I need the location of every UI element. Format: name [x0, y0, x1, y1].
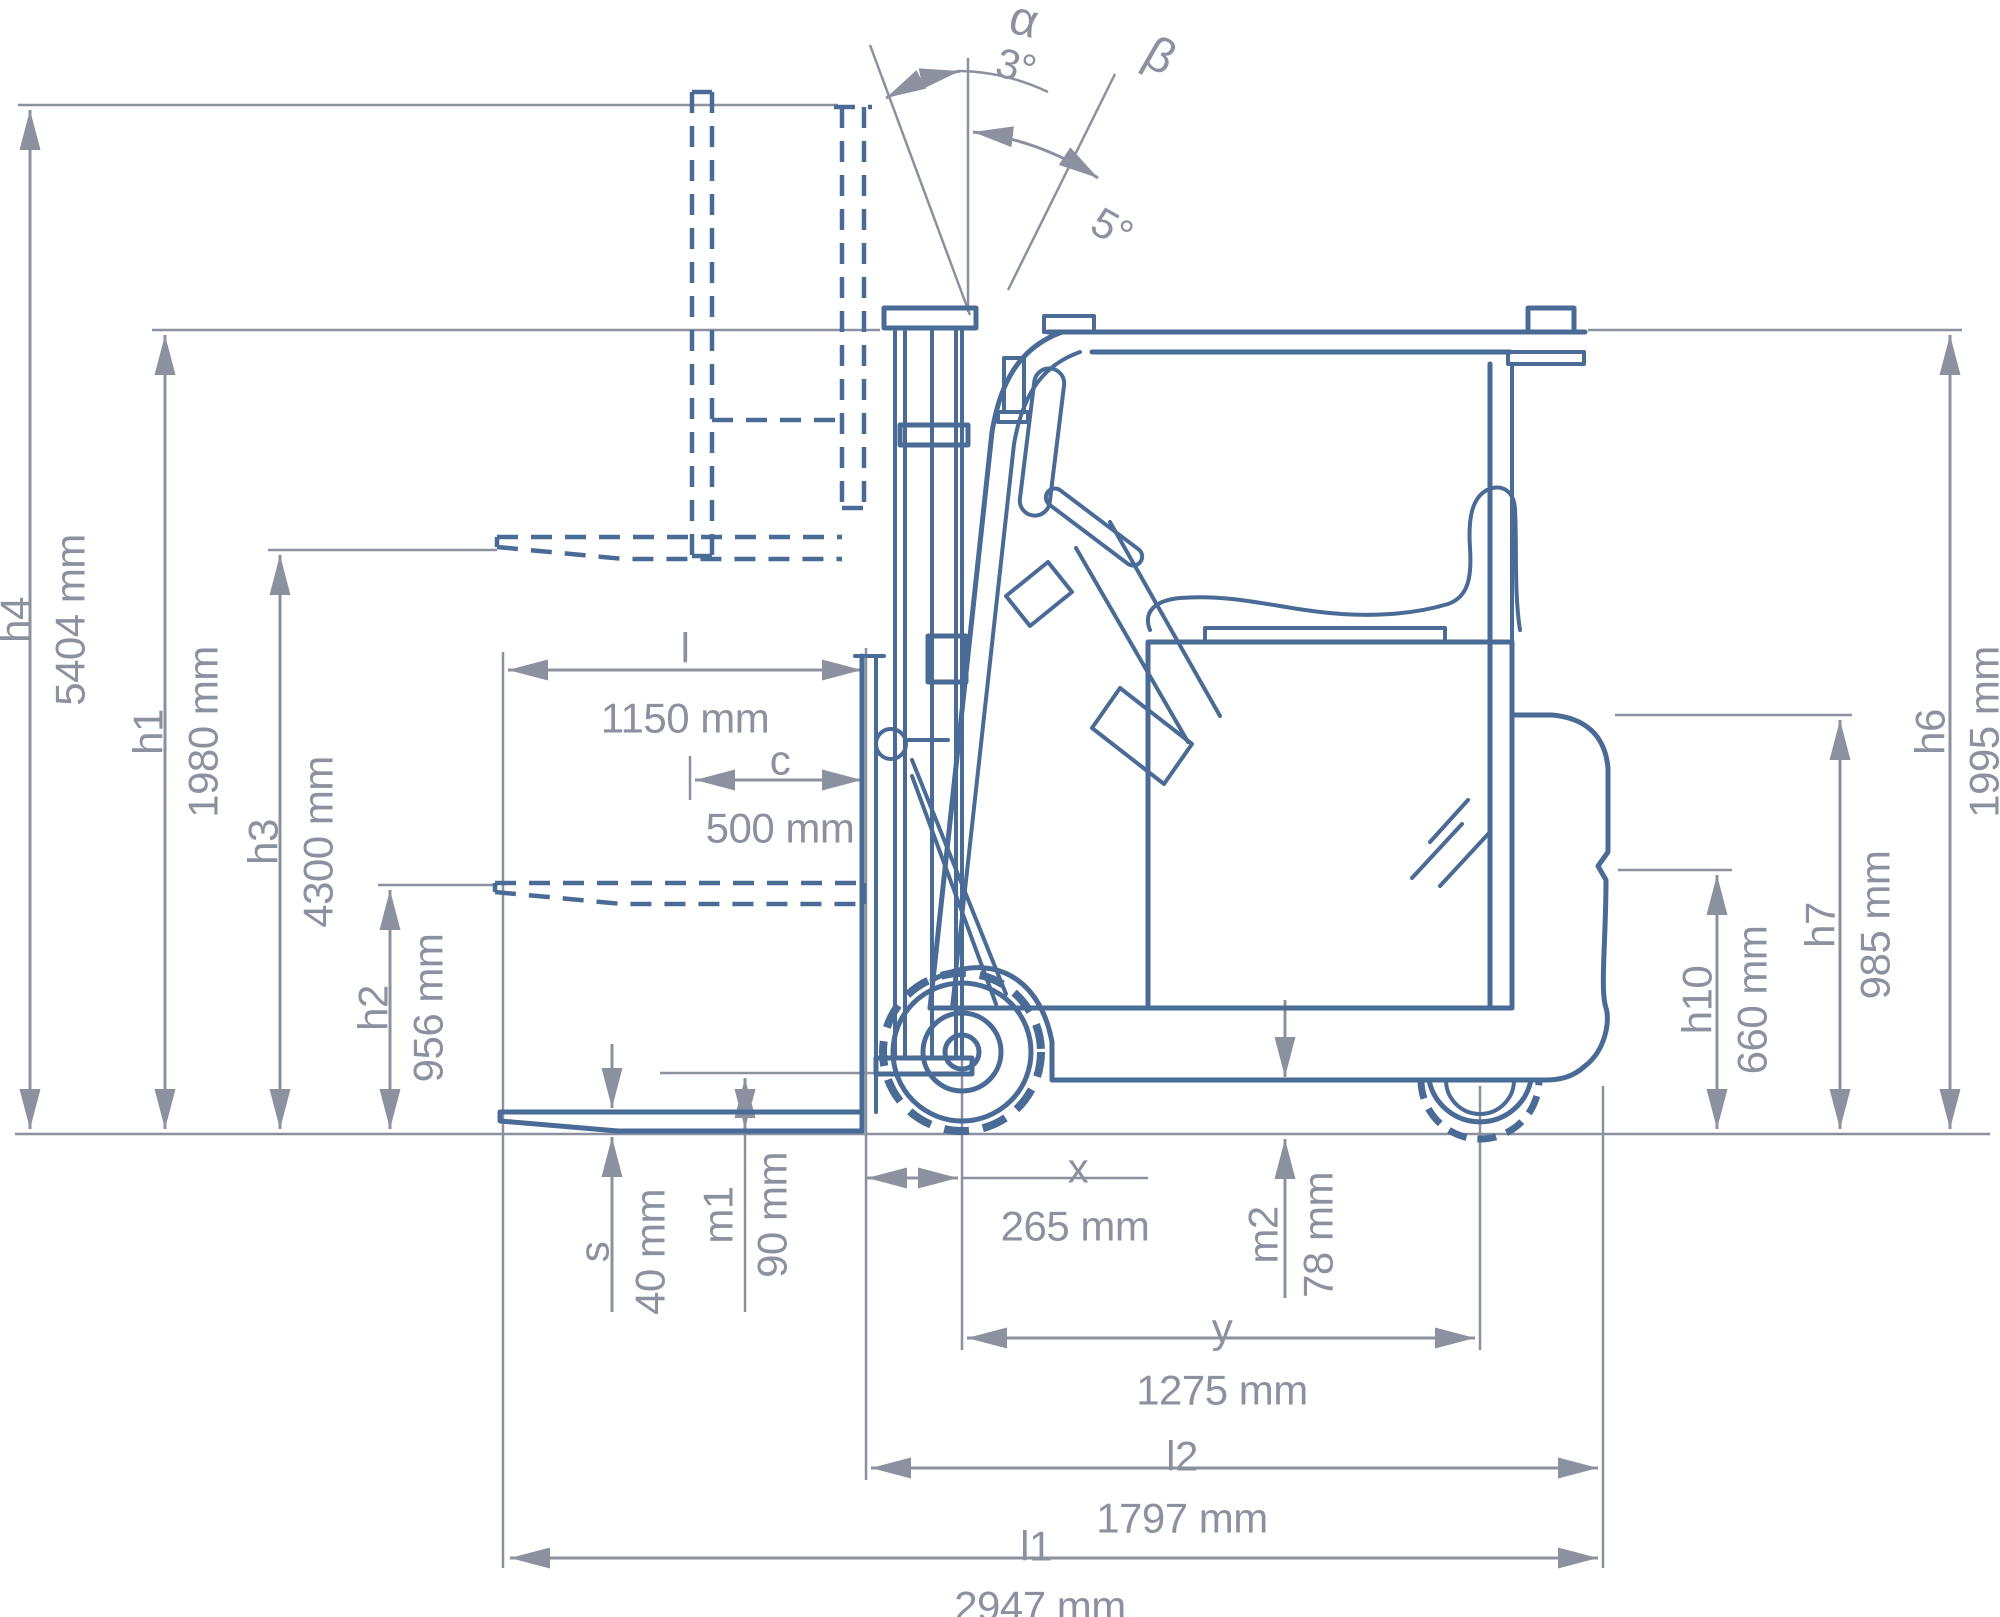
forklift-dimension-diagram: α 3° β 5° h4 5404 mm h1 1980 mm h3 4300 … [0, 0, 2000, 1617]
diagram-canvas: α 3° β 5° h4 5404 mm h1 1980 mm h3 4300 … [0, 0, 2000, 1617]
beta-tilt-line [1008, 74, 1115, 290]
angle-beta-label: β [1135, 26, 1185, 86]
dim-x-label: x [1068, 1145, 1089, 1192]
fork-blade [500, 1112, 862, 1131]
dim-h1-value: 1980 mm [180, 646, 227, 818]
dim-l1-label: l1 [1020, 1523, 1052, 1570]
dim-h7-label: h7 [1797, 902, 1844, 948]
dim-s-label: s [571, 1242, 618, 1263]
dim-h2-value: 956 mm [405, 934, 452, 1083]
dim-l2-value: 1797 mm [1096, 1495, 1268, 1542]
dim-h10-value: 660 mm [1729, 926, 1776, 1075]
beta-arc [973, 132, 1098, 178]
dim-h3-value: 4300 mm [295, 756, 342, 928]
fork-raised-h2-dashed [495, 883, 864, 912]
dim-y-label: y [1212, 1305, 1233, 1352]
dimension-labels: α 3° β 5° h4 5404 mm h1 1980 mm h3 4300 … [0, 0, 2000, 1617]
dim-c-value: 500 mm [706, 805, 855, 852]
guard-front-pillar-outer [930, 332, 1062, 1008]
dim-y-value: 1275 mm [1136, 1367, 1308, 1414]
battery-hatch-marks [1412, 800, 1490, 886]
dim-m2-label: m2 [1240, 1206, 1287, 1263]
overhead-guard [930, 308, 1585, 1008]
dim-h7-value: 985 mm [1852, 851, 1899, 1000]
steering-console [1092, 688, 1192, 784]
dim-m1-label: m1 [695, 1186, 742, 1243]
forklift-drawing [495, 92, 1608, 1139]
alpha-arc [886, 71, 960, 98]
dim-m2-value: 78 mm [1295, 1172, 1342, 1298]
guard-rear-foot [1508, 352, 1584, 364]
mast-raised-dashed [497, 92, 872, 559]
battery-box [1148, 642, 1512, 1008]
column-bracket [1006, 562, 1072, 626]
angle-construction [870, 45, 1115, 315]
dim-m1-value: 90 mm [749, 1152, 796, 1278]
inner-mast-raised-dashed [834, 107, 872, 508]
mast-top-cap [884, 308, 976, 328]
counterweight [1512, 715, 1608, 1080]
dim-s-value: 40 mm [627, 1189, 674, 1315]
angle-beta-value: 5° [1083, 198, 1140, 258]
dim-l2-label: l2 [1166, 1433, 1198, 1480]
dim-l1-value: 2947 mm [954, 1583, 1126, 1617]
steering-column-left [1076, 548, 1188, 742]
pillar-lamp-base [998, 412, 1028, 422]
backrest-raised-dashed [692, 92, 712, 556]
dim-h3-label: h3 [240, 819, 287, 865]
dim-h6-label: h6 [1907, 709, 1954, 755]
dim-l-label: l [681, 625, 690, 672]
dim-h2-label: h2 [350, 985, 397, 1031]
dim-h4-label: h4 [0, 597, 39, 643]
dim-c-label: c [770, 737, 791, 784]
steering [1006, 485, 1220, 784]
dim-h4-value: 5404 mm [47, 534, 94, 706]
seat [1148, 488, 1520, 630]
dim-h6-value: 1995 mm [1961, 646, 2000, 818]
steering-column-right [1110, 522, 1220, 716]
dim-h1-label: h1 [125, 709, 172, 755]
dim-l-value: 1150 mm [601, 695, 769, 742]
fork-raised-h3-dashed [497, 537, 842, 559]
dim-x-value: 265 mm [1001, 1203, 1150, 1250]
alpha-tilt-line [870, 45, 970, 315]
dim-h10-label: h10 [1674, 966, 1721, 1035]
beacon-light [1528, 308, 1574, 332]
mast-pivot-knob [876, 729, 906, 759]
